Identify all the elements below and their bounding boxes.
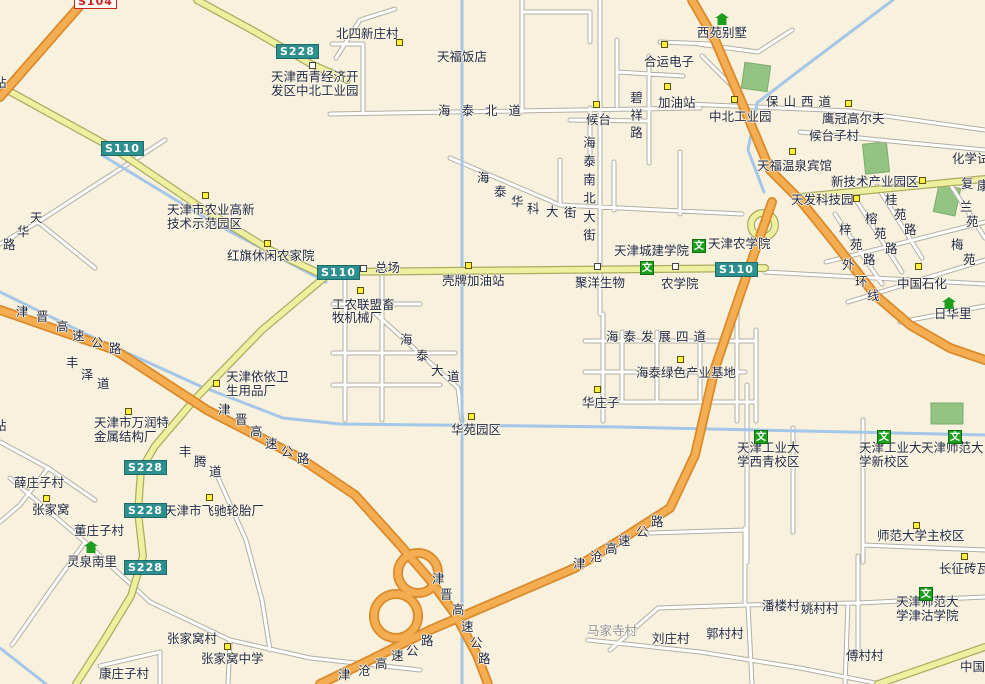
map-label: 路: [109, 342, 122, 355]
map-label: 加油站: [658, 96, 696, 109]
map-label: 天福饭店: [437, 50, 487, 63]
map-label: 西苑别墅: [697, 26, 747, 39]
map-label: 路: [478, 652, 491, 665]
map-label: 速: [72, 329, 85, 342]
road-badge-s110: S110: [101, 141, 144, 156]
map-label: 学新校区: [859, 455, 909, 468]
map-label: 海: [477, 171, 490, 184]
map-label: 总场: [375, 261, 400, 274]
map-label: 环: [855, 275, 868, 288]
map-label: 华: [511, 195, 524, 208]
poi-marker-icon[interactable]: [593, 101, 600, 108]
map-label: 梓: [839, 223, 852, 236]
map-label: 张家窝中学: [201, 652, 264, 665]
map-label: 泰: [494, 185, 507, 198]
map-label: 海泰南北大街: [582, 136, 595, 247]
map-label: 路: [651, 515, 664, 528]
poi-marker-icon[interactable]: [661, 41, 668, 48]
poi-marker-icon[interactable]: [396, 39, 403, 46]
poi-marker-icon[interactable]: [43, 495, 50, 502]
map-label: 天津市飞驰轮胎厂: [164, 504, 264, 517]
map-label: 张家窝: [32, 503, 70, 516]
school-icon[interactable]: 文: [692, 239, 706, 253]
map-label: 发区中北工业园: [271, 84, 359, 97]
map-label: 灵泉南里: [67, 555, 117, 568]
junction-marker-icon[interactable]: [309, 62, 316, 69]
map-label: 路: [863, 253, 876, 266]
map-label: 候台子村: [809, 129, 859, 142]
map-label: 张家窝村: [167, 632, 217, 645]
map-label: 高: [56, 320, 69, 333]
road-badge-s110: S110: [715, 262, 758, 277]
school-icon[interactable]: 文: [640, 261, 654, 275]
map-label: 海泰北道: [438, 104, 532, 117]
map-label: 津: [218, 403, 231, 416]
map-label: 金属结构厂: [94, 430, 157, 443]
poi-marker-icon[interactable]: [915, 263, 922, 270]
map-label: 公: [636, 525, 649, 538]
map-label: 苑: [963, 253, 976, 266]
school-icon[interactable]: 文: [877, 430, 891, 444]
map-label: 化学试: [952, 152, 985, 165]
map-label: 天津西青经济开: [271, 70, 359, 83]
poi-marker-icon[interactable]: [919, 177, 926, 184]
poi-marker-icon[interactable]: [224, 643, 231, 650]
map-label: 中国: [960, 660, 985, 673]
road-badge-s228: S228: [124, 560, 167, 575]
map-label: 晋: [36, 310, 49, 323]
map-label: 海: [400, 333, 413, 346]
map-label: 桂: [885, 193, 898, 206]
map-label: 津: [16, 305, 29, 318]
map-label: 碧祥路: [629, 91, 642, 144]
map-label: 高: [452, 603, 465, 616]
road-badge-s104: S104: [74, 0, 117, 9]
poi-marker-icon[interactable]: [845, 100, 852, 107]
map-label: 天津农学院: [708, 237, 771, 250]
map-label: 腾: [194, 455, 207, 468]
poi-marker-icon[interactable]: [853, 195, 860, 202]
map-label: 康: [977, 179, 985, 192]
map-label: 师范大学主校区: [877, 529, 965, 542]
poi-marker-icon[interactable]: [465, 262, 472, 269]
map-label: 天津市农业高新: [167, 203, 255, 216]
map-label: 路: [904, 223, 917, 236]
map-label: 道: [97, 377, 110, 390]
map-label: 天发科技园: [791, 193, 854, 206]
poi-marker-icon[interactable]: [731, 96, 738, 103]
poi-marker-icon[interactable]: [468, 413, 475, 420]
poi-marker-icon[interactable]: [357, 287, 364, 294]
road-badge-s228: S228: [276, 44, 319, 59]
map-viewport[interactable]: 北四新庄村天福饭店天津西青经济开发区中北工业园西苑别墅合运电子保山西道加油站中北…: [0, 0, 985, 684]
poi-marker-icon[interactable]: [202, 192, 209, 199]
map-label: 榕: [865, 212, 878, 225]
map-label: 鹰冠高尔夫: [822, 112, 885, 125]
map-label: 苑: [850, 238, 863, 251]
map-label: 晋: [235, 413, 248, 426]
map-label: 公: [406, 644, 419, 657]
map-label: 泰: [416, 349, 429, 362]
map-label: 学津沽学院: [896, 609, 959, 622]
map-label: 街: [564, 206, 577, 219]
poi-marker-icon[interactable]: [125, 408, 132, 415]
junction-marker-icon[interactable]: [672, 263, 679, 270]
map-label: 路: [3, 238, 16, 251]
map-label: 津: [432, 572, 445, 585]
map-label: 董庄子村: [74, 524, 124, 537]
map-label: 苑: [894, 208, 907, 221]
map-label: 合运电子: [644, 55, 694, 68]
road-badge-s228: S228: [124, 460, 167, 475]
road-badge-s110: S110: [317, 265, 360, 280]
map-label: 苑: [874, 227, 887, 240]
map-label: 道: [447, 370, 460, 383]
school-icon[interactable]: 文: [919, 587, 933, 601]
map-label: 复: [961, 177, 974, 190]
map-label: 大: [546, 205, 559, 218]
map-label: 红旗休闲农家院: [227, 249, 315, 262]
map-label: 天津城建学院: [614, 244, 689, 257]
map-label: 速: [391, 649, 404, 662]
map-label: 科: [527, 202, 540, 215]
map-label: 速: [461, 620, 474, 633]
map-label: 线: [867, 289, 880, 302]
poi-marker-icon[interactable]: [206, 494, 213, 501]
road-badge-s228: S228: [124, 503, 167, 518]
school-icon[interactable]: 文: [948, 430, 962, 444]
map-label: 外: [842, 258, 855, 271]
map-label: 海泰发展四道: [606, 330, 711, 343]
map-label: 华庄子: [582, 396, 620, 409]
map-label: 北四新庄村: [336, 27, 399, 40]
map-label: 天津依依卫: [226, 370, 289, 383]
map-label: 公: [91, 336, 104, 349]
poi-marker-icon[interactable]: [664, 83, 671, 90]
map-label: 学西青校区: [737, 455, 800, 468]
map-label: 天津市万润特: [94, 416, 169, 429]
map-label: 津: [573, 557, 586, 570]
school-icon[interactable]: 文: [754, 430, 768, 444]
map-label: 华: [17, 225, 30, 238]
map-label: 沧: [590, 550, 603, 563]
map-label: 高: [375, 657, 388, 670]
map-label: 道: [209, 465, 222, 478]
map-label: 海泰绿色产业基地: [636, 366, 736, 379]
map-label: 中北工业园: [709, 110, 772, 123]
map-label: 天津工业大: [737, 441, 800, 454]
map-label: 姚村村: [801, 602, 839, 615]
map-label: 生用品厂: [226, 384, 276, 397]
map-label: 速: [265, 437, 278, 450]
map-label: 路: [885, 242, 898, 255]
map-label: 沧: [358, 664, 371, 677]
poi-marker-icon[interactable]: [594, 386, 601, 393]
poi-marker-icon[interactable]: [264, 240, 271, 247]
map-label: 薛庄子村: [14, 476, 64, 489]
map-label: 津: [338, 668, 351, 681]
map-label: 傅村村: [846, 649, 884, 662]
map-label: 丰: [66, 356, 79, 369]
map-label: 天: [30, 211, 43, 224]
map-label: 兰: [960, 200, 973, 213]
map-label: 康庄子村: [99, 667, 149, 680]
junction-marker-icon[interactable]: [360, 265, 367, 272]
map-label: 路: [421, 634, 434, 647]
map-label: 速: [618, 534, 631, 547]
map-label: 刘庄村: [652, 632, 690, 645]
map-label: 农学院: [661, 277, 699, 290]
map-label: 郭村村: [706, 627, 744, 640]
poi-marker-icon[interactable]: [677, 356, 684, 363]
map-label: 保山西道: [766, 95, 836, 108]
map-label: 马家寺村: [587, 624, 637, 637]
poi-marker-icon[interactable]: [913, 522, 920, 529]
map-label: 公: [470, 636, 483, 649]
map-label: 高: [605, 542, 618, 555]
map-label: 新技术产业园区: [831, 175, 919, 188]
map-label: 大: [431, 364, 444, 377]
map-label: 路: [297, 452, 310, 465]
map-label: 站: [0, 76, 7, 89]
map-label: 泽: [81, 368, 94, 381]
map-label: 高: [250, 425, 263, 438]
map-label: 牧机械厂: [332, 311, 382, 324]
map-label: 长征砖瓦: [939, 562, 985, 575]
map-label: 华苑园区: [451, 423, 501, 436]
map-label: 候台: [586, 113, 611, 126]
junction-marker-icon[interactable]: [594, 263, 601, 270]
map-label: 站: [0, 419, 7, 432]
map-label: 天福温泉宾馆: [757, 159, 832, 172]
map-label: 技术示范园区: [167, 217, 242, 230]
poi-marker-icon[interactable]: [789, 148, 796, 155]
map-label: 潘楼村: [762, 599, 800, 612]
map-label: 苑: [966, 215, 979, 228]
map-label: 壳牌加油站: [442, 274, 505, 287]
map-label: 梅: [951, 238, 964, 251]
poi-marker-icon[interactable]: [961, 553, 968, 560]
map-label: 公: [281, 445, 294, 458]
map-label: 聚洋生物: [575, 276, 625, 289]
map-label: 晋: [440, 588, 453, 601]
map-label: 丰: [179, 445, 192, 458]
poi-marker-icon[interactable]: [213, 380, 220, 387]
map-label: 中国石化: [897, 277, 947, 290]
